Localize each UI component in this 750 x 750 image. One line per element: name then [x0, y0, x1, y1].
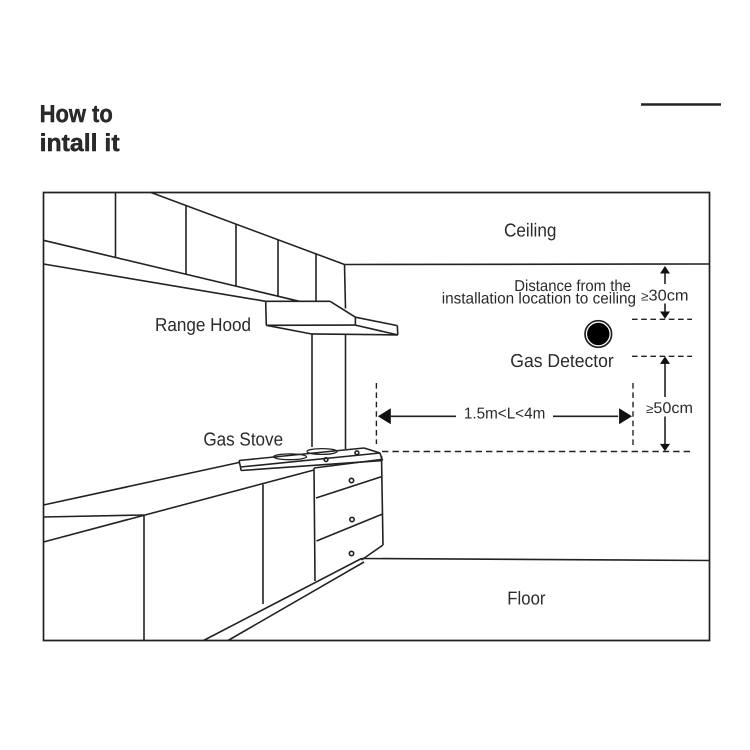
- svg-text:Gas Stove: Gas Stove: [203, 429, 283, 450]
- svg-text:≥30cm: ≥30cm: [641, 287, 689, 304]
- svg-text:≥50cm: ≥50cm: [646, 400, 693, 417]
- svg-text:1.5m<L<4m: 1.5m<L<4m: [464, 406, 545, 423]
- svg-text:Gas Detector: Gas Detector: [510, 350, 614, 371]
- svg-text:How to: How to: [40, 101, 113, 128]
- svg-text:Floor: Floor: [507, 587, 545, 608]
- svg-text:Ceiling: Ceiling: [504, 220, 556, 241]
- svg-text:intall it: intall it: [40, 130, 120, 157]
- svg-text:Range Hood: Range Hood: [155, 314, 251, 335]
- svg-text:installation location to ceili: installation location to ceiling: [442, 291, 636, 308]
